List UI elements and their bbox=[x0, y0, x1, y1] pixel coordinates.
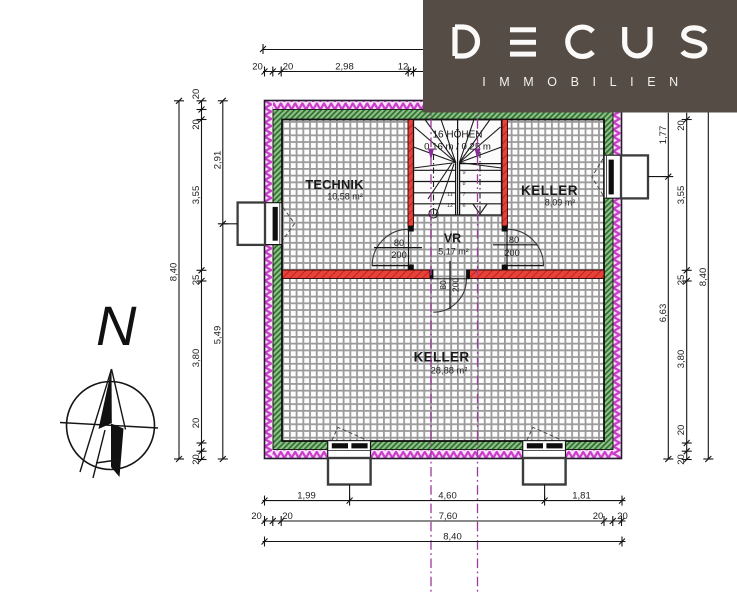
svg-text:20: 20 bbox=[676, 120, 687, 131]
svg-text:12: 12 bbox=[447, 203, 453, 209]
svg-text:200: 200 bbox=[504, 248, 520, 258]
svg-text:2,98: 2,98 bbox=[335, 62, 354, 73]
svg-text:20: 20 bbox=[191, 418, 202, 429]
svg-text:20: 20 bbox=[282, 511, 293, 522]
svg-text:3,80: 3,80 bbox=[191, 349, 202, 368]
svg-text:12: 12 bbox=[398, 62, 409, 73]
svg-text:20: 20 bbox=[676, 425, 687, 436]
svg-text:3,55: 3,55 bbox=[191, 186, 202, 205]
svg-text:KELLER: KELLER bbox=[521, 183, 578, 198]
svg-text:5,49: 5,49 bbox=[212, 326, 223, 345]
svg-text:20: 20 bbox=[191, 89, 202, 100]
svg-text:2,91: 2,91 bbox=[212, 151, 223, 170]
svg-text:1,99: 1,99 bbox=[297, 491, 316, 502]
svg-text:4,60: 4,60 bbox=[438, 491, 457, 502]
svg-text:9: 9 bbox=[462, 170, 465, 176]
svg-text:20: 20 bbox=[191, 454, 202, 465]
svg-text:200: 200 bbox=[391, 250, 407, 260]
svg-text:5,17 m²: 5,17 m² bbox=[438, 247, 469, 257]
svg-text:25: 25 bbox=[191, 275, 202, 286]
svg-text:1,81: 1,81 bbox=[572, 491, 591, 502]
svg-text:8,40: 8,40 bbox=[698, 268, 709, 287]
svg-text:25: 25 bbox=[676, 275, 687, 286]
svg-text:11: 11 bbox=[447, 192, 453, 198]
svg-text:20: 20 bbox=[251, 511, 262, 522]
svg-text:28,88 m²: 28,88 m² bbox=[431, 366, 468, 376]
svg-text:80: 80 bbox=[394, 238, 404, 248]
svg-text:8,40: 8,40 bbox=[169, 263, 180, 282]
svg-text:8,40: 8,40 bbox=[443, 532, 462, 543]
svg-text:IMMOBILIEN: IMMOBILIEN bbox=[482, 75, 692, 89]
svg-text:N: N bbox=[96, 294, 137, 357]
svg-text:20: 20 bbox=[252, 62, 263, 73]
svg-text:20: 20 bbox=[676, 454, 687, 465]
svg-text:20: 20 bbox=[593, 511, 604, 522]
svg-text:KELLER: KELLER bbox=[414, 350, 470, 365]
svg-text:TECHNIK: TECHNIK bbox=[305, 177, 364, 192]
svg-text:20: 20 bbox=[191, 119, 202, 130]
svg-text:200: 200 bbox=[451, 278, 461, 292]
svg-text:80: 80 bbox=[509, 235, 519, 245]
svg-text:20: 20 bbox=[283, 62, 294, 73]
svg-text:7: 7 bbox=[462, 192, 465, 198]
svg-text:80: 80 bbox=[438, 280, 448, 290]
svg-text:0,16 m / 0,25 m: 0,16 m / 0,25 m bbox=[424, 141, 491, 152]
svg-text:20: 20 bbox=[617, 511, 628, 522]
svg-text:3,80: 3,80 bbox=[676, 350, 687, 369]
svg-text:1,77: 1,77 bbox=[658, 126, 669, 145]
svg-text:3,55: 3,55 bbox=[676, 186, 687, 205]
svg-text:8: 8 bbox=[462, 181, 465, 187]
svg-text:VR: VR bbox=[444, 232, 461, 246]
svg-text:10,58 m²: 10,58 m² bbox=[327, 192, 363, 202]
svg-text:7,60: 7,60 bbox=[439, 511, 458, 522]
svg-text:6,63: 6,63 bbox=[658, 304, 669, 323]
svg-text:16 HÖHEN: 16 HÖHEN bbox=[432, 128, 482, 140]
svg-text:8,09 m²: 8,09 m² bbox=[545, 198, 576, 208]
svg-text:6: 6 bbox=[462, 203, 465, 209]
